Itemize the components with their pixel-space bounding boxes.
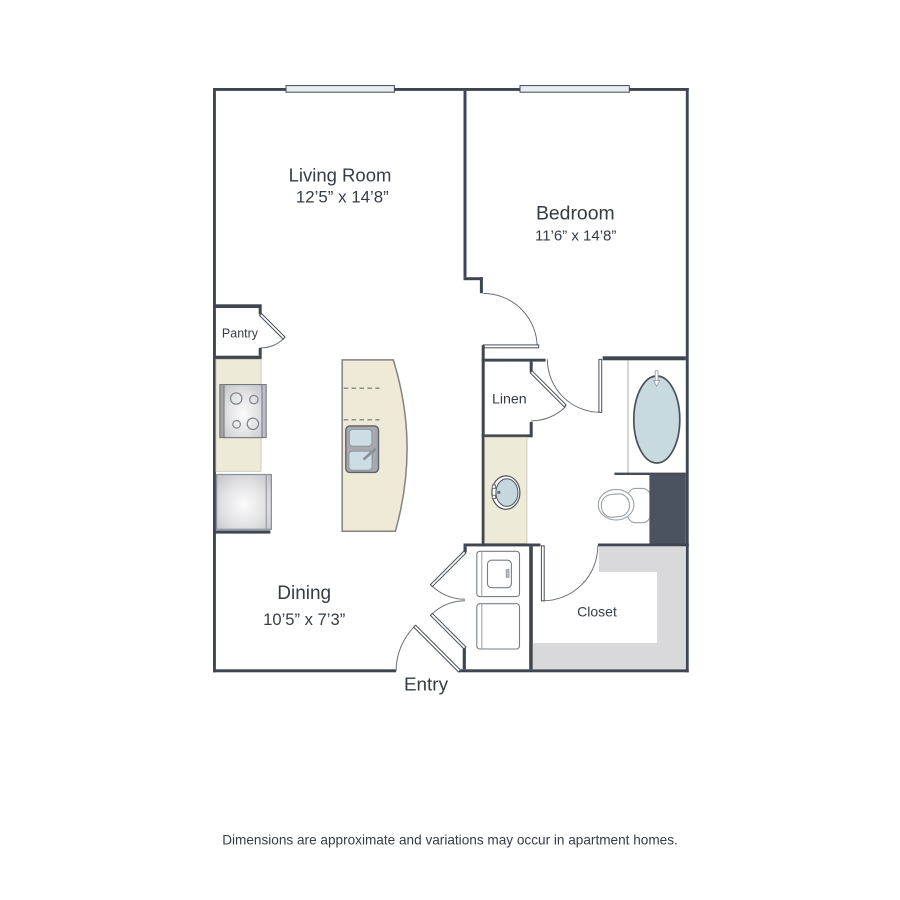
svg-text:Dimensions are approximate and: Dimensions are approximate and variation… <box>222 832 678 847</box>
svg-text:12’5” x 14’8”: 12’5” x 14’8” <box>296 188 389 207</box>
svg-text:Pantry: Pantry <box>222 327 259 341</box>
svg-text:10’5” x 7’3”: 10’5” x 7’3” <box>263 610 345 629</box>
svg-text:Closet: Closet <box>577 604 617 620</box>
svg-text:Bedroom: Bedroom <box>536 202 615 224</box>
svg-text:11’6” x 14’8”: 11’6” x 14’8” <box>535 228 616 245</box>
svg-text:Dining: Dining <box>277 583 331 604</box>
svg-text:Linen: Linen <box>492 392 527 408</box>
svg-text:Entry: Entry <box>404 675 449 696</box>
svg-text:Living Room: Living Room <box>289 164 392 185</box>
